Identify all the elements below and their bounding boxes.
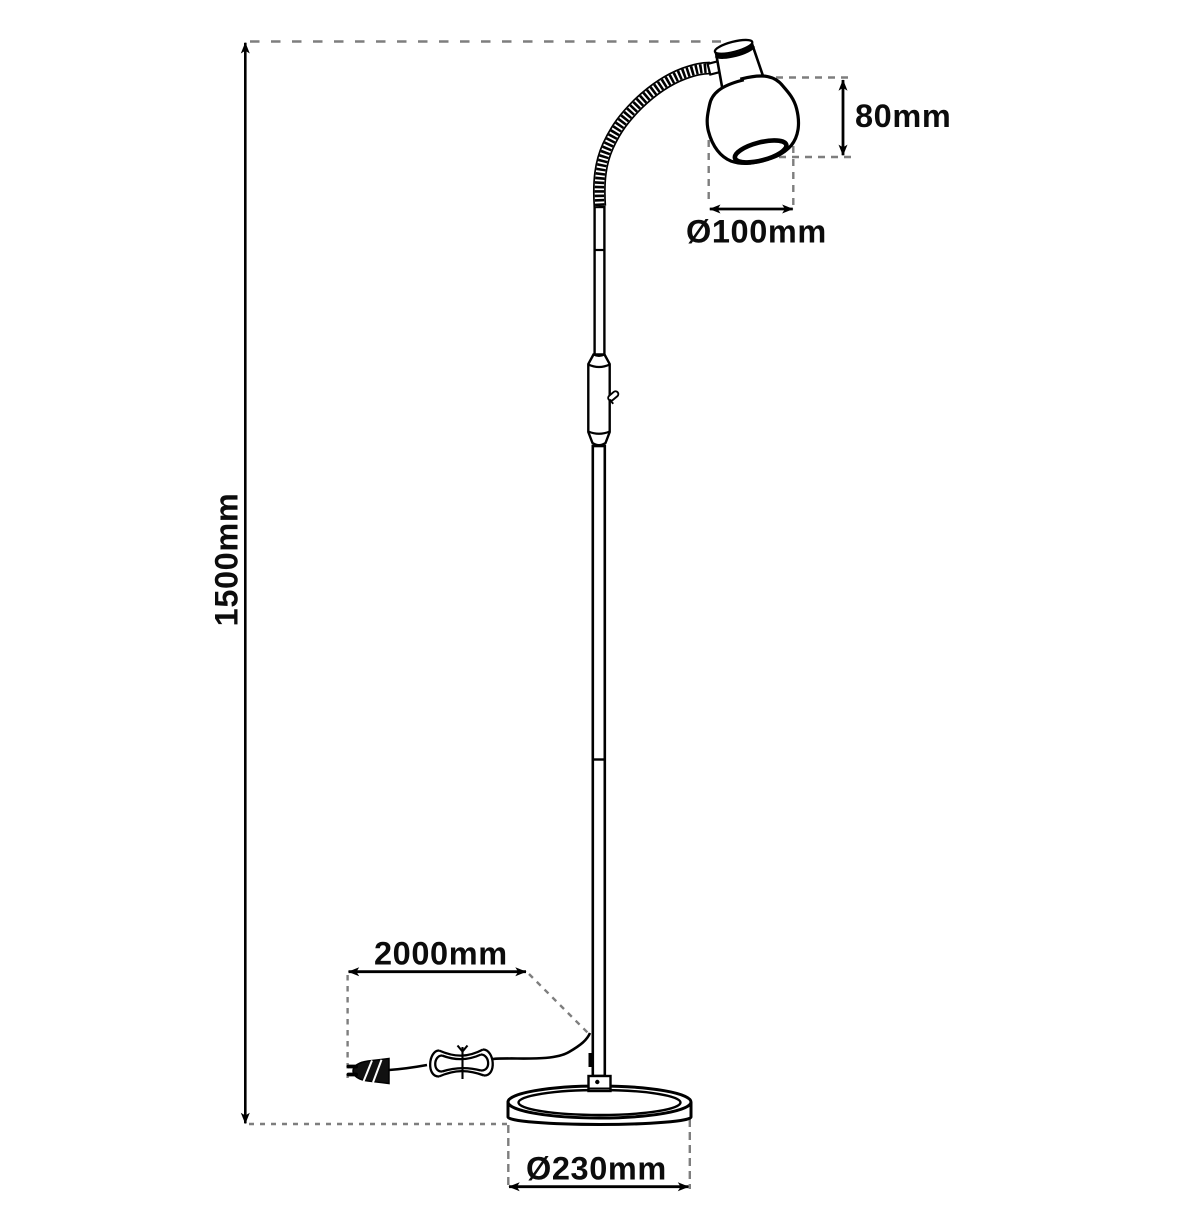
svg-text:2000mm: 2000mm — [374, 936, 508, 972]
svg-text:80mm: 80mm — [855, 98, 951, 134]
svg-text:Ø100mm: Ø100mm — [686, 214, 827, 250]
svg-text:1500mm: 1500mm — [209, 493, 245, 627]
svg-text:Ø230mm: Ø230mm — [526, 1151, 667, 1187]
